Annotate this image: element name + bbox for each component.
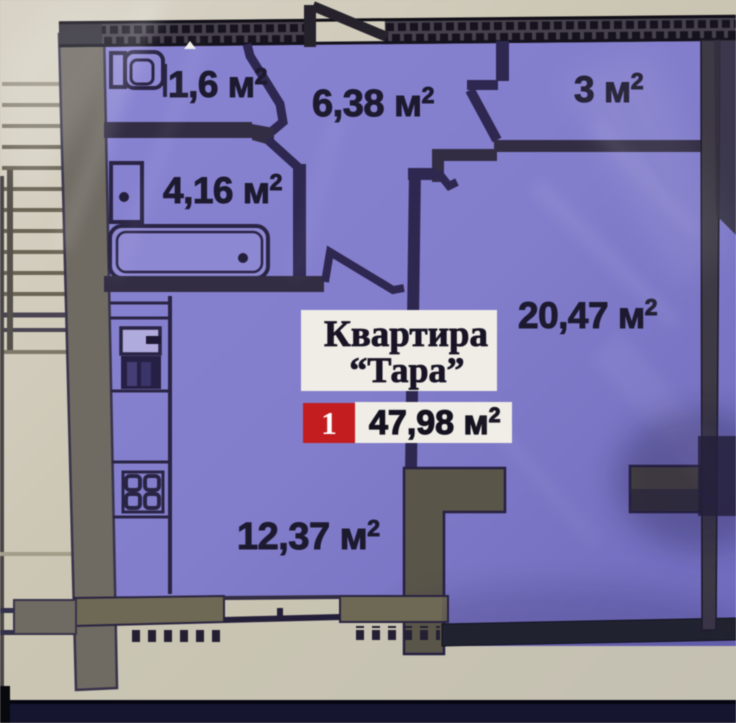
- svg-text:“Тара”: “Тара”: [349, 350, 464, 390]
- svg-text:Квартира: Квартира: [324, 314, 488, 355]
- svg-text:20,47 м2: 20,47 м2: [518, 294, 657, 336]
- svg-text:6,38 м2: 6,38 м2: [312, 82, 434, 125]
- svg-text:1: 1: [321, 405, 337, 441]
- svg-text:12,37 м2: 12,37 м2: [237, 515, 380, 558]
- svg-text:4,16 м2: 4,16 м2: [163, 169, 282, 211]
